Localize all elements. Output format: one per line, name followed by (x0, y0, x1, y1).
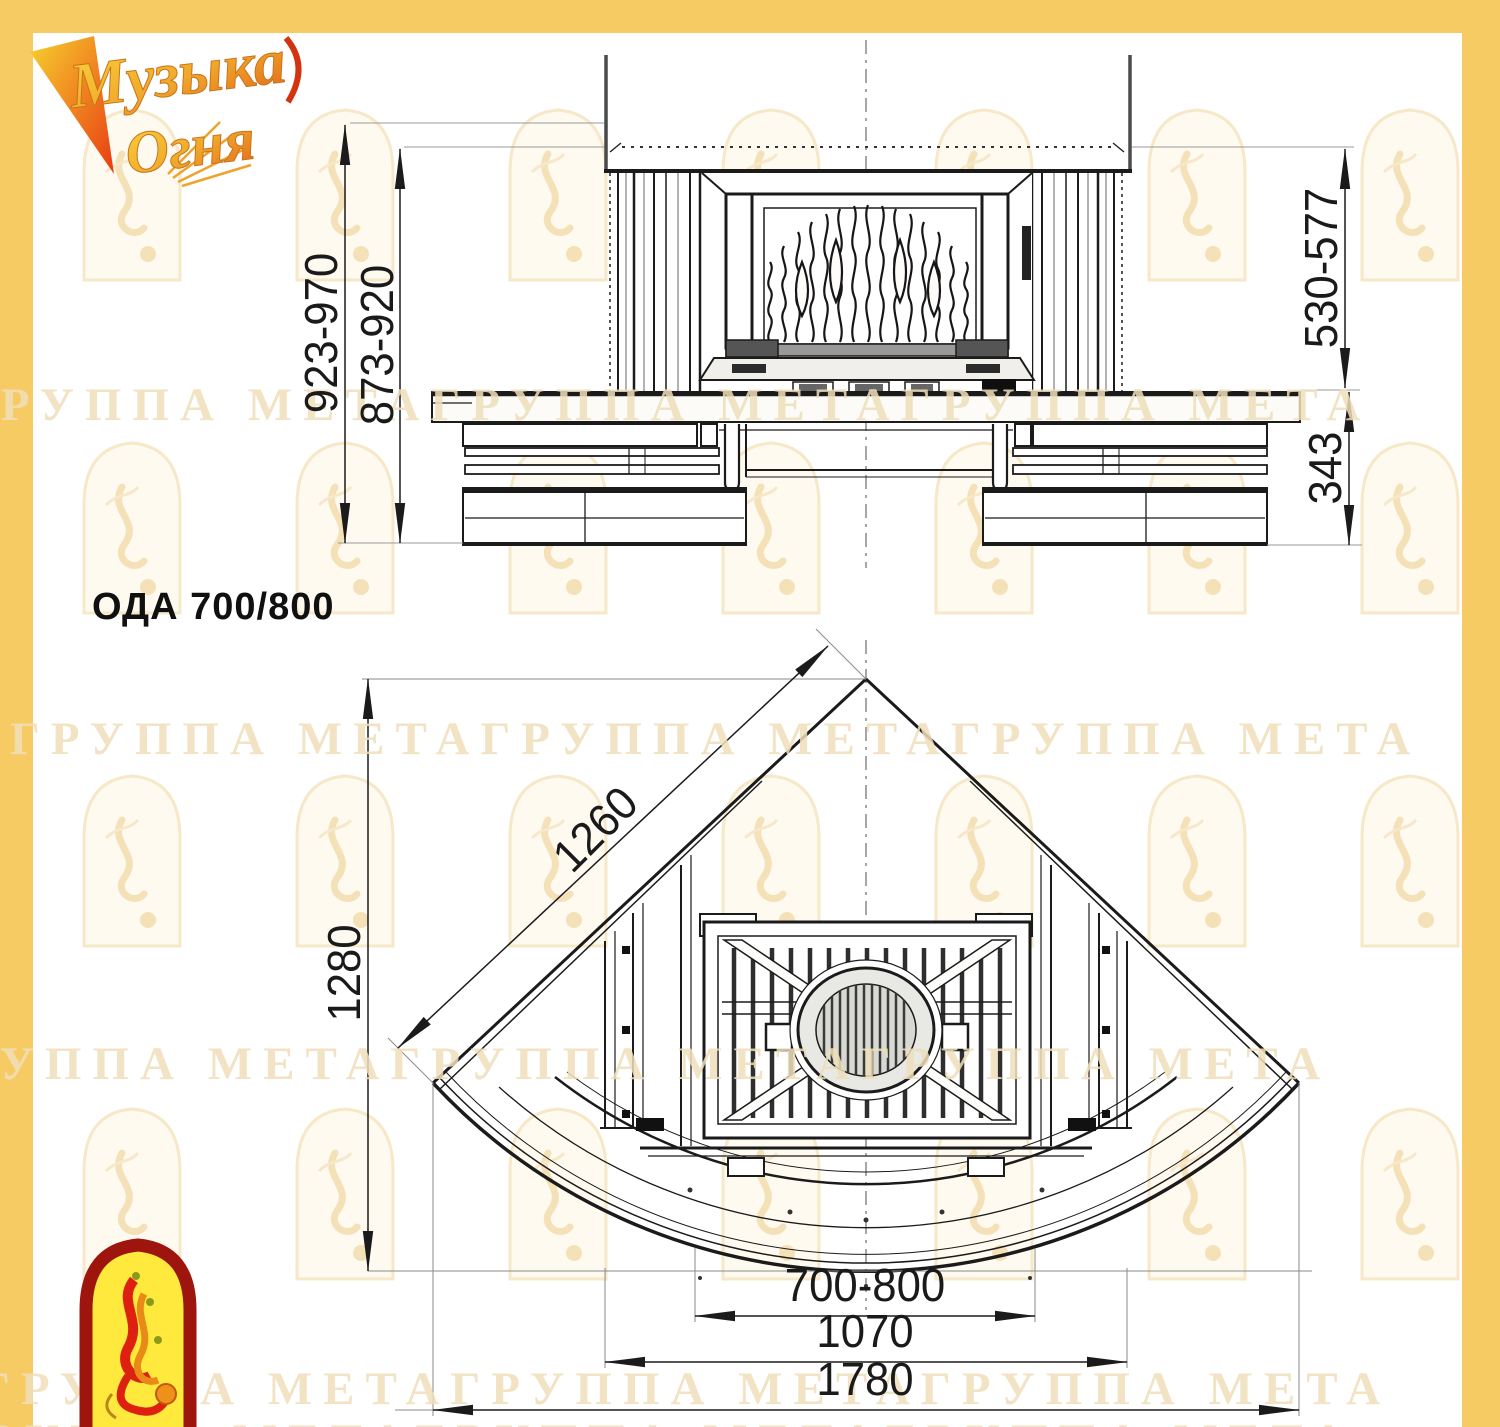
page: ГРУППА МЕТАГРУППА МЕТАГРУППА МЕТА ГРУППА… (0, 0, 1500, 1427)
dim-label-firebox-height: 530-577 (1294, 188, 1348, 348)
bench-slab (432, 392, 1300, 422)
dim-label-overall-height: 923-970 (294, 253, 348, 413)
dim-label-overall-width: 1780 (816, 1352, 913, 1406)
logo-line2-wrap: Огня (122, 105, 259, 186)
door-handle (1022, 226, 1031, 280)
right-pillar (1030, 173, 1124, 392)
left-pillar (608, 173, 702, 392)
dim-label-inner-width: 1070 (816, 1304, 913, 1358)
brand-logo: Музыка Огня (18, 2, 328, 217)
dim-label-body-height: 873-920 (350, 265, 404, 425)
logo-line1-wrap: Музыка (64, 25, 289, 122)
dim-label-depth: 1280 (317, 924, 371, 1021)
badge-logo (78, 1236, 200, 1427)
model-title: ОДА 700/800 (92, 586, 335, 629)
dim-label-base-height: 343 (1298, 432, 1352, 505)
frame-right-band (1462, 0, 1500, 1427)
flue-collar (790, 960, 942, 1100)
logo-text-line1: Музыка (64, 25, 289, 122)
logo-text-line2: Огня (122, 105, 259, 186)
firebox-plan (700, 914, 1032, 1138)
